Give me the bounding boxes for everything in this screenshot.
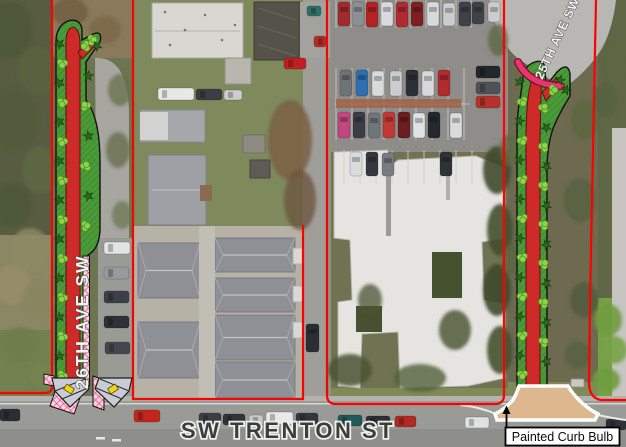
aerial-plan-screenshot: SW TRENTON ST 26TH AVE SW 25TH AVE SW Pa… bbox=[0, 0, 626, 447]
street-label-trenton: SW TRENTON ST bbox=[181, 418, 395, 443]
curb-bulb-step bbox=[571, 379, 584, 387]
plan-canvas: SW TRENTON ST 26TH AVE SW 25TH AVE SW Pa… bbox=[0, 0, 626, 447]
callout-label: Painted Curb Bulb bbox=[512, 430, 614, 444]
street-label-26th-ave: 26TH AVE SW bbox=[72, 255, 92, 390]
